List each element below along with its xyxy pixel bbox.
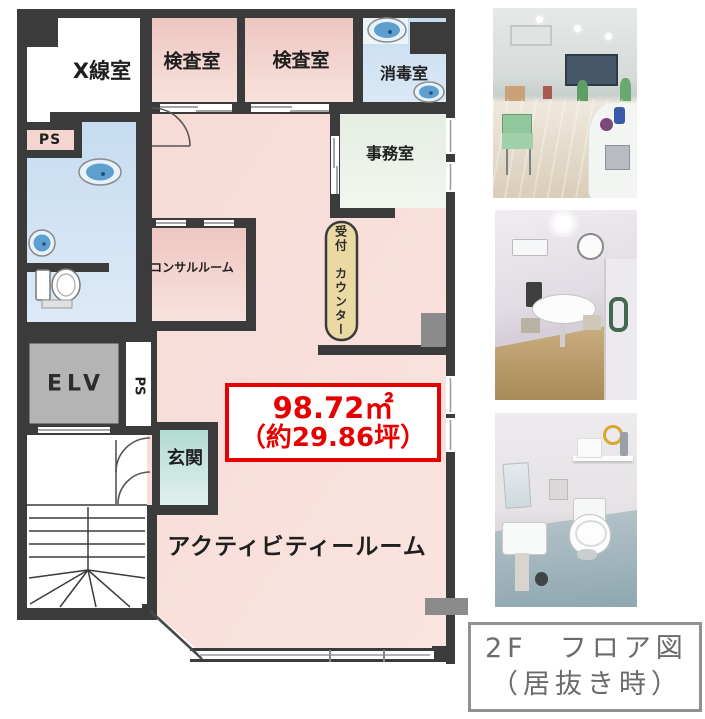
room-label-disinfection: 消毒室 bbox=[380, 60, 428, 84]
area-measurement-box: 98.72㎡ （約29.86坪） bbox=[225, 383, 441, 462]
duct-block bbox=[421, 313, 446, 347]
plant bbox=[620, 78, 632, 101]
ceiling-light bbox=[574, 25, 581, 32]
toy-shelf bbox=[543, 86, 552, 99]
stool bbox=[583, 315, 601, 330]
page: X線室 検査室 検査室 消毒室 事務室 PS コンサルルーム 受付 カウンター … bbox=[0, 0, 705, 719]
shelf-box bbox=[577, 438, 602, 457]
table-leg bbox=[560, 320, 564, 347]
basket bbox=[605, 145, 630, 170]
stool bbox=[521, 318, 541, 333]
caption-floor-subtitle: （居抜き時） bbox=[491, 667, 699, 703]
hand-sink bbox=[502, 522, 547, 555]
ceiling-light bbox=[536, 16, 543, 23]
photo-consult-room bbox=[495, 210, 637, 400]
room-label-activity: アクティビティールーム bbox=[167, 527, 426, 561]
toilet-base bbox=[577, 549, 597, 561]
control-panel bbox=[549, 479, 568, 500]
balcony-block bbox=[425, 598, 468, 615]
counter-item bbox=[614, 107, 626, 124]
room-label-exam-1: 検査室 bbox=[163, 47, 220, 74]
shelf-bottle bbox=[620, 432, 629, 455]
ceiling-vent bbox=[510, 25, 551, 46]
area-square-meters: 98.72㎡ bbox=[273, 392, 394, 424]
room-label-reception: 受付 カウンター bbox=[333, 225, 350, 337]
chair-leg bbox=[506, 149, 508, 176]
light-flare bbox=[543, 210, 583, 237]
plant bbox=[577, 80, 589, 101]
wall-clock bbox=[577, 233, 604, 260]
room-label-entrance: 玄関 bbox=[167, 444, 203, 470]
caption-box: 2F フロア図 （居抜き時） bbox=[468, 622, 702, 712]
room-label-ps-side: PS bbox=[132, 377, 147, 396]
floor-plan-drawing bbox=[0, 0, 470, 719]
ceiling-light bbox=[605, 33, 612, 40]
toilet-seat bbox=[575, 520, 607, 547]
mirror bbox=[502, 463, 531, 509]
room-label-exam-2: 検査室 bbox=[272, 46, 329, 73]
area-tsubo: （約29.86坪） bbox=[240, 424, 426, 453]
photo-activity-room bbox=[493, 8, 637, 198]
room-label-elevator: ELV bbox=[47, 372, 105, 397]
floor-plan: X線室 検査室 検査室 消毒室 事務室 PS コンサルルーム 受付 カウンター … bbox=[0, 0, 470, 719]
caption-floor-title: 2F フロア図 bbox=[485, 631, 699, 667]
room-label-ps-top: PS bbox=[39, 132, 61, 148]
sink-pedestal bbox=[515, 553, 529, 592]
green-chair-seat bbox=[502, 133, 534, 148]
photo-toilet-room bbox=[495, 413, 637, 607]
room-label-consult: コンサルルーム bbox=[150, 259, 234, 276]
window bbox=[565, 54, 618, 87]
door-handle bbox=[609, 297, 628, 332]
chair-leg bbox=[529, 149, 531, 176]
room-label-office: 事務室 bbox=[366, 140, 414, 164]
ac-unit bbox=[512, 239, 548, 256]
room-label-xray: X線室 bbox=[73, 55, 131, 85]
trash-bin bbox=[535, 572, 548, 586]
counter-item bbox=[600, 118, 613, 131]
